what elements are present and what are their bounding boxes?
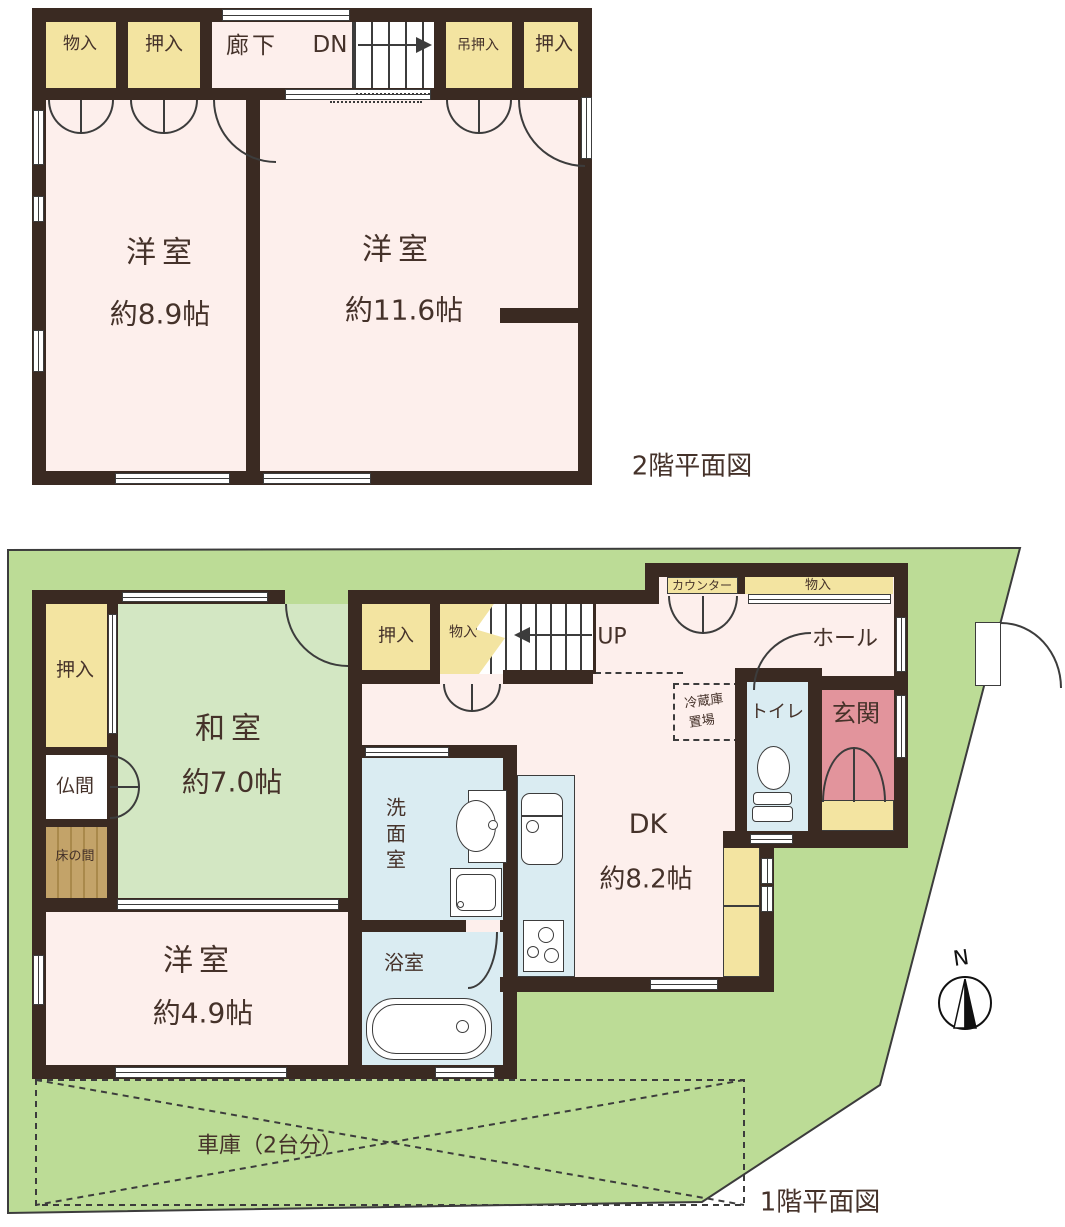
corridor-label: 廊下 [226,34,278,58]
wall [808,676,908,690]
fridge-space [673,683,740,741]
door-leaf [110,786,140,788]
room-youshitsu [46,912,348,1065]
wall [512,22,524,88]
room-name-label: DK [629,811,668,839]
closet-2f-storage1 [44,22,116,88]
window [435,1067,495,1078]
wall [32,590,46,1079]
room-size-label: 約4.9帖 [153,998,254,1027]
stair-break-line [595,672,683,674]
wall [735,668,747,848]
tokonoma-label: 床の間 [55,850,94,864]
stairs-arrow-line [530,634,592,636]
closet-label: 押入 [56,661,94,681]
window [33,196,44,222]
wall [430,602,440,674]
wall [645,563,908,577]
window [115,473,230,484]
closet-label: 物入 [449,626,477,641]
gate-leaf [975,622,1001,686]
garage-area [35,1079,745,1206]
sliding-door [365,747,449,757]
window [761,886,773,912]
wall [593,602,596,674]
toilet-bowl [757,746,790,790]
garage-label: 車庫（2台分） [197,1134,343,1157]
wall [348,920,466,932]
wall [808,668,822,831]
room-name-label: 洋室 [362,234,434,266]
toilet-tank [752,806,793,822]
arrow-left-icon [514,627,530,643]
wall [434,22,446,88]
door-leaf [471,684,473,712]
wall [500,308,592,323]
room-size-label: 約7.0帖 [182,767,283,796]
dk-cabinet-divider [723,905,760,907]
closet-2f-hanging [446,22,512,88]
closet-front [108,614,117,734]
washroom-label: 洗面室 [384,797,405,875]
wall [348,590,362,1079]
room-name-label: 和室 [195,713,267,745]
door-leaf [702,596,704,634]
closet-label: 吊押入 [457,39,499,54]
wall [116,22,128,88]
door-leaf [478,100,480,134]
wall [738,575,745,594]
stove-burner [538,927,554,943]
wall [500,977,774,992]
room-name-label: 洋室 [126,237,198,269]
window [33,955,44,1005]
stairs-arrow-line [358,44,418,46]
closet-label: 物入 [805,579,831,593]
door-leaf [163,100,165,134]
closet-label: 押入 [535,35,573,55]
closet-label: 物入 [63,36,97,54]
sliding-door [748,594,891,604]
window [650,979,718,990]
stove-burner [527,946,539,958]
sliding-door [117,899,339,910]
wall [578,8,592,485]
window [750,834,793,844]
stairs-2f [352,22,434,88]
hall-label: ホール [812,627,878,650]
room-size-label: 約11.6帖 [345,295,463,324]
door-leaf [853,747,855,802]
window [896,695,906,758]
wall [503,670,593,684]
bathtub-drain [456,1020,469,1033]
floor2-title: 2階平面図 [632,453,753,480]
wall [645,563,659,604]
room-size-label: 約8.2帖 [599,866,692,893]
closet-label: 押入 [378,628,414,647]
wall [32,8,46,485]
window [115,1067,287,1078]
stairs-down-label: DN [313,33,348,57]
kitchen-faucet [526,820,539,833]
door-leaf [80,100,82,134]
washing-machine-dot [457,901,464,908]
arrow-right-icon [416,37,432,53]
room-size-label: 約8.9帖 [110,299,211,328]
stair-break-line [356,93,430,95]
wall [44,747,107,755]
floor1-title: 1階平面図 [760,1189,881,1216]
wall [200,22,212,88]
entrance-step [817,800,894,831]
faucet-icon [488,820,498,830]
dk-cabinet [723,843,760,977]
window [33,110,44,165]
sliding-door-track [330,101,422,103]
window [263,473,371,484]
wall [348,590,658,604]
floorplan-canvas: 物入 押入 廊下 DN 吊押入 押入 洋室 約8.9帖 洋室 約11.6帖 2階… [0,0,1065,1227]
toilet-tank [753,792,792,805]
bathroom-label: 浴室 [384,953,424,974]
wall [44,819,107,827]
window [222,9,350,21]
closet-label: 押入 [145,35,183,55]
butsuma-label: 仏間 [56,777,94,797]
toilet-label: トイレ [750,704,804,723]
bathtub-inner [372,1004,486,1054]
counter-label: カウンター [672,580,732,593]
kitchen-sink-divider [522,815,562,817]
entrance-label: 玄関 [832,701,880,726]
window [896,617,906,672]
stove-burner [544,948,559,963]
compass-north-label: N [952,946,971,970]
window [761,858,773,884]
room-name-label: 洋室 [163,945,235,977]
window [122,592,268,602]
window [33,330,44,372]
stairs-up-label: UP [597,625,626,648]
